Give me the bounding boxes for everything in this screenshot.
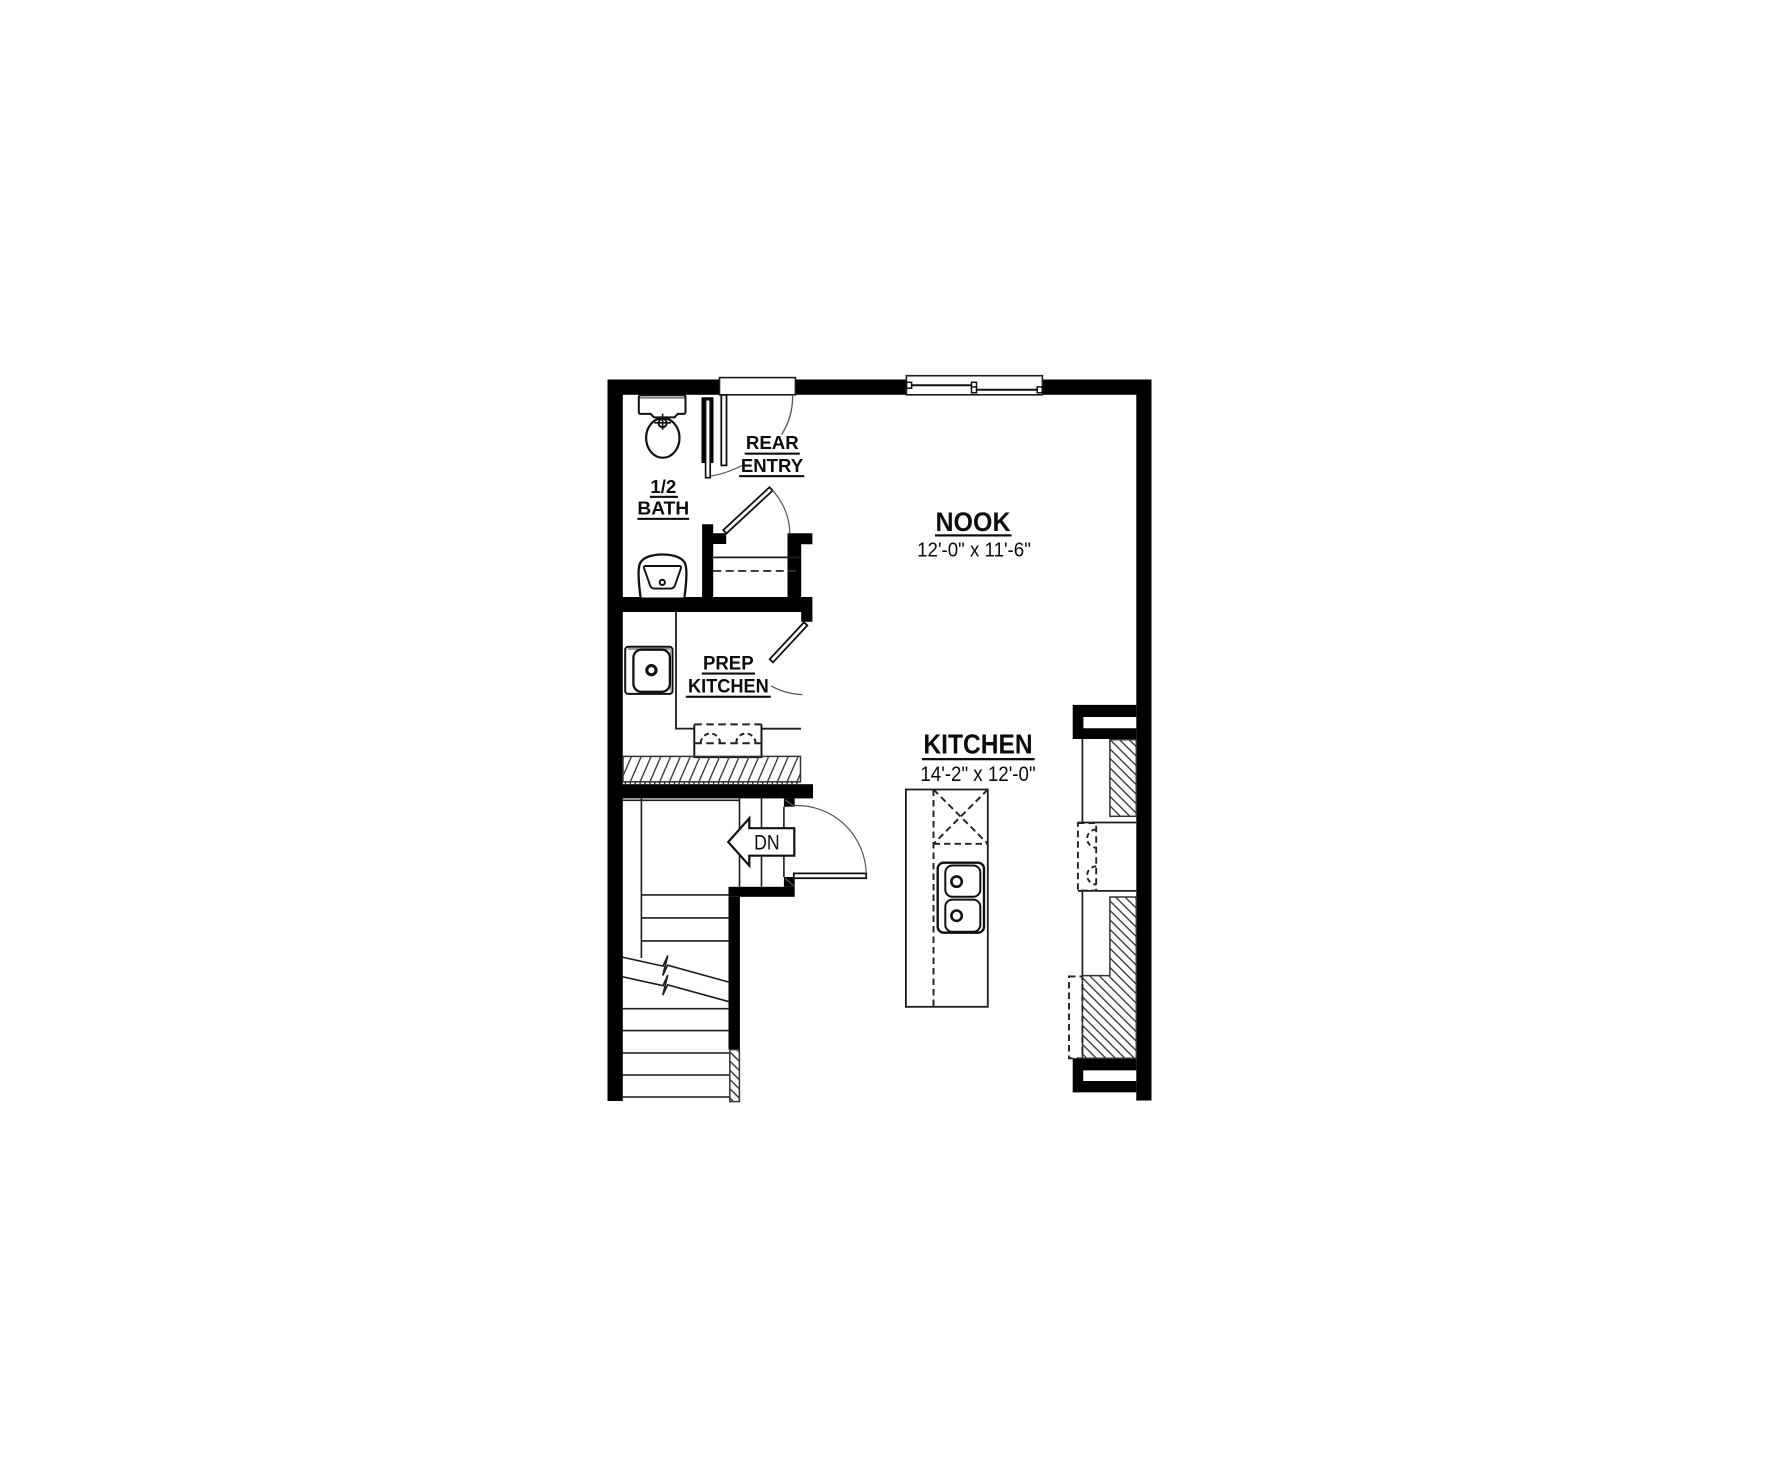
svg-text:ENTRY: ENTRY [741,455,804,476]
svg-text:12'-0" x 11'-6": 12'-0" x 11'-6" [917,539,1031,562]
svg-text:14'-2" x 12'-0": 14'-2" x 12'-0" [920,763,1035,786]
svg-text:DN: DN [754,832,780,855]
svg-text:1/2: 1/2 [650,476,676,497]
svg-text:KITCHEN: KITCHEN [923,729,1032,760]
svg-text:BATH: BATH [637,498,689,519]
svg-text:NOOK: NOOK [936,507,1011,537]
svg-text:REAR: REAR [746,432,799,453]
svg-text:KITCHEN: KITCHEN [688,676,769,698]
svg-text:PREP: PREP [703,653,754,675]
